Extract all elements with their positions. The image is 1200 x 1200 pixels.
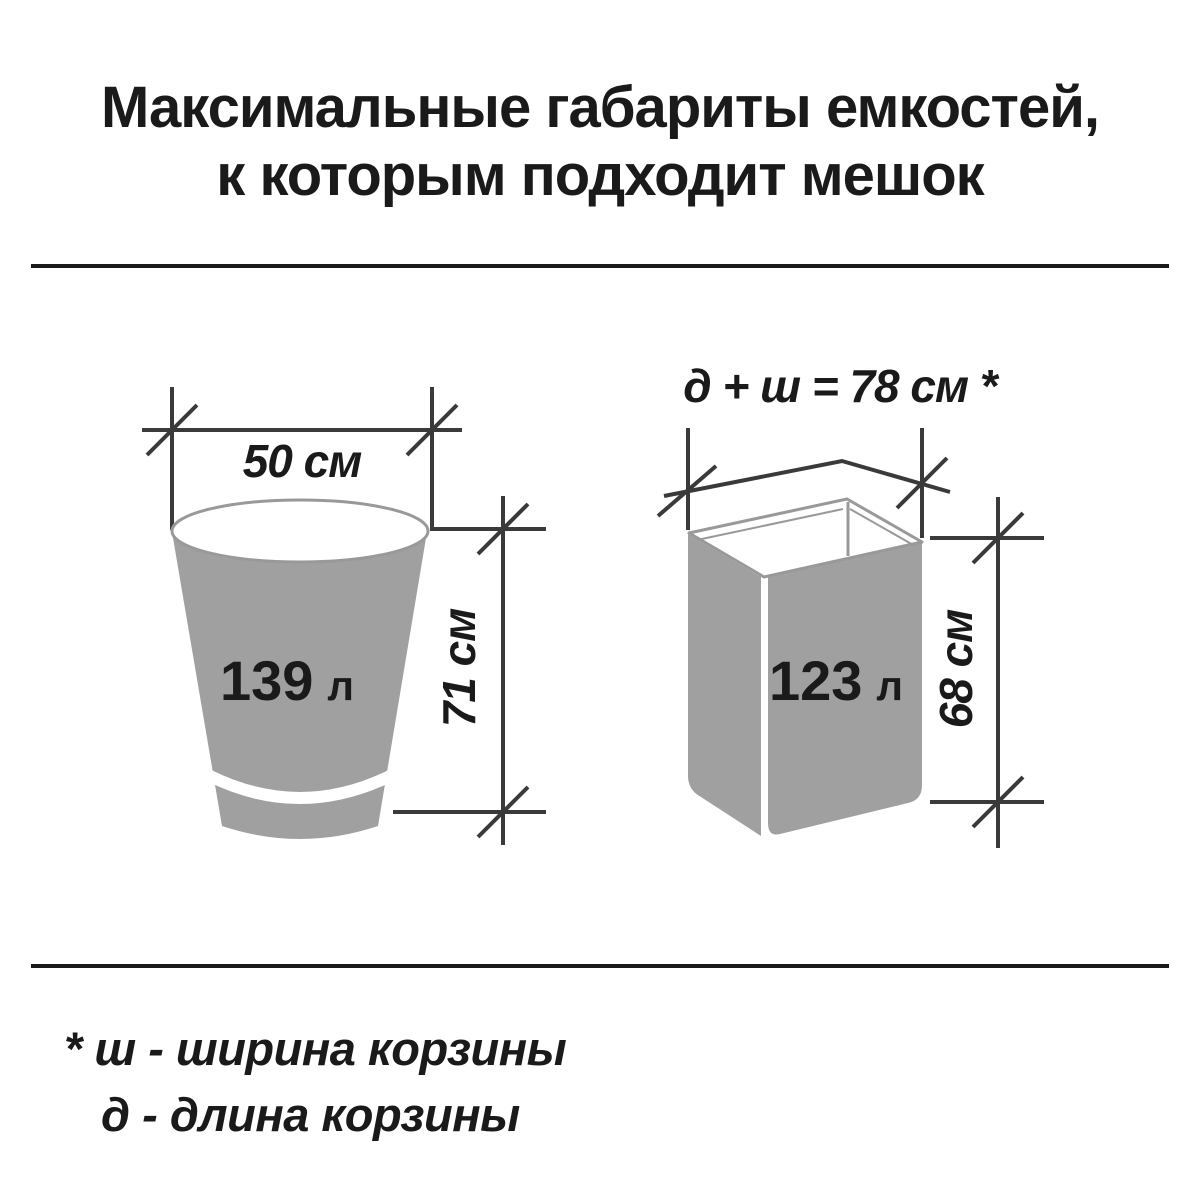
title-line-1: Максимальные габариты емкостей, [0, 74, 1200, 142]
divider-bottom [31, 964, 1169, 968]
bucket-diameter-label: 50 см [243, 435, 363, 487]
rect-basket-figure: д + ш = 78 см * 123л 68 см [658, 360, 1044, 848]
footnote-length-definition: д - длина корзины [101, 1082, 566, 1148]
bag-size-infographic: Максимальные габариты емкостей, к которы… [0, 0, 1200, 1200]
bucket-rim [172, 500, 428, 562]
basket-left-face [688, 534, 761, 836]
footnote-width-definition: * ш - ширина корзины [64, 1016, 566, 1082]
basket-height-label: 68 см [930, 609, 982, 729]
round-bucket-figure: 50 см 139л 71 см [142, 387, 546, 845]
footnote: * ш - ширина корзины д - длина корзины [64, 1016, 566, 1148]
basket-top-dimension-label: д + ш = 78 см * [683, 360, 1000, 412]
bucket-height-label: 71 см [433, 608, 485, 728]
page-title: Максимальные габариты емкостей, к которы… [0, 74, 1200, 210]
title-line-2: к которым подходит мешок [0, 142, 1200, 210]
divider-top [31, 264, 1169, 268]
container-dimensions-diagram: 50 см 139л 71 см д + ш = 78 см * 123л 68… [0, 300, 1200, 960]
